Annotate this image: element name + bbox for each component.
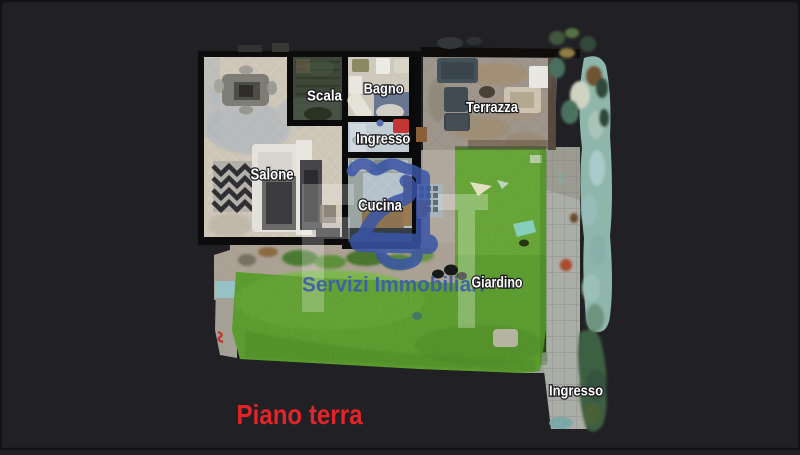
svg-text:Terrazza: Terrazza — [466, 99, 519, 116]
svg-text:Scala: Scala — [307, 88, 343, 105]
svg-text:Piano terra: Piano terra — [237, 399, 364, 430]
svg-text:Ingresso: Ingresso — [356, 131, 410, 148]
svg-text:Cucina: Cucina — [358, 198, 402, 215]
svg-text:Giardino: Giardino — [472, 275, 523, 292]
svg-text:Salone: Salone — [251, 167, 294, 184]
svg-text:Ingresso: Ingresso — [549, 383, 603, 400]
svg-text:Bagno: Bagno — [364, 81, 404, 98]
svg-text:Servizi Immobiliari: Servizi Immobiliari — [302, 273, 485, 297]
